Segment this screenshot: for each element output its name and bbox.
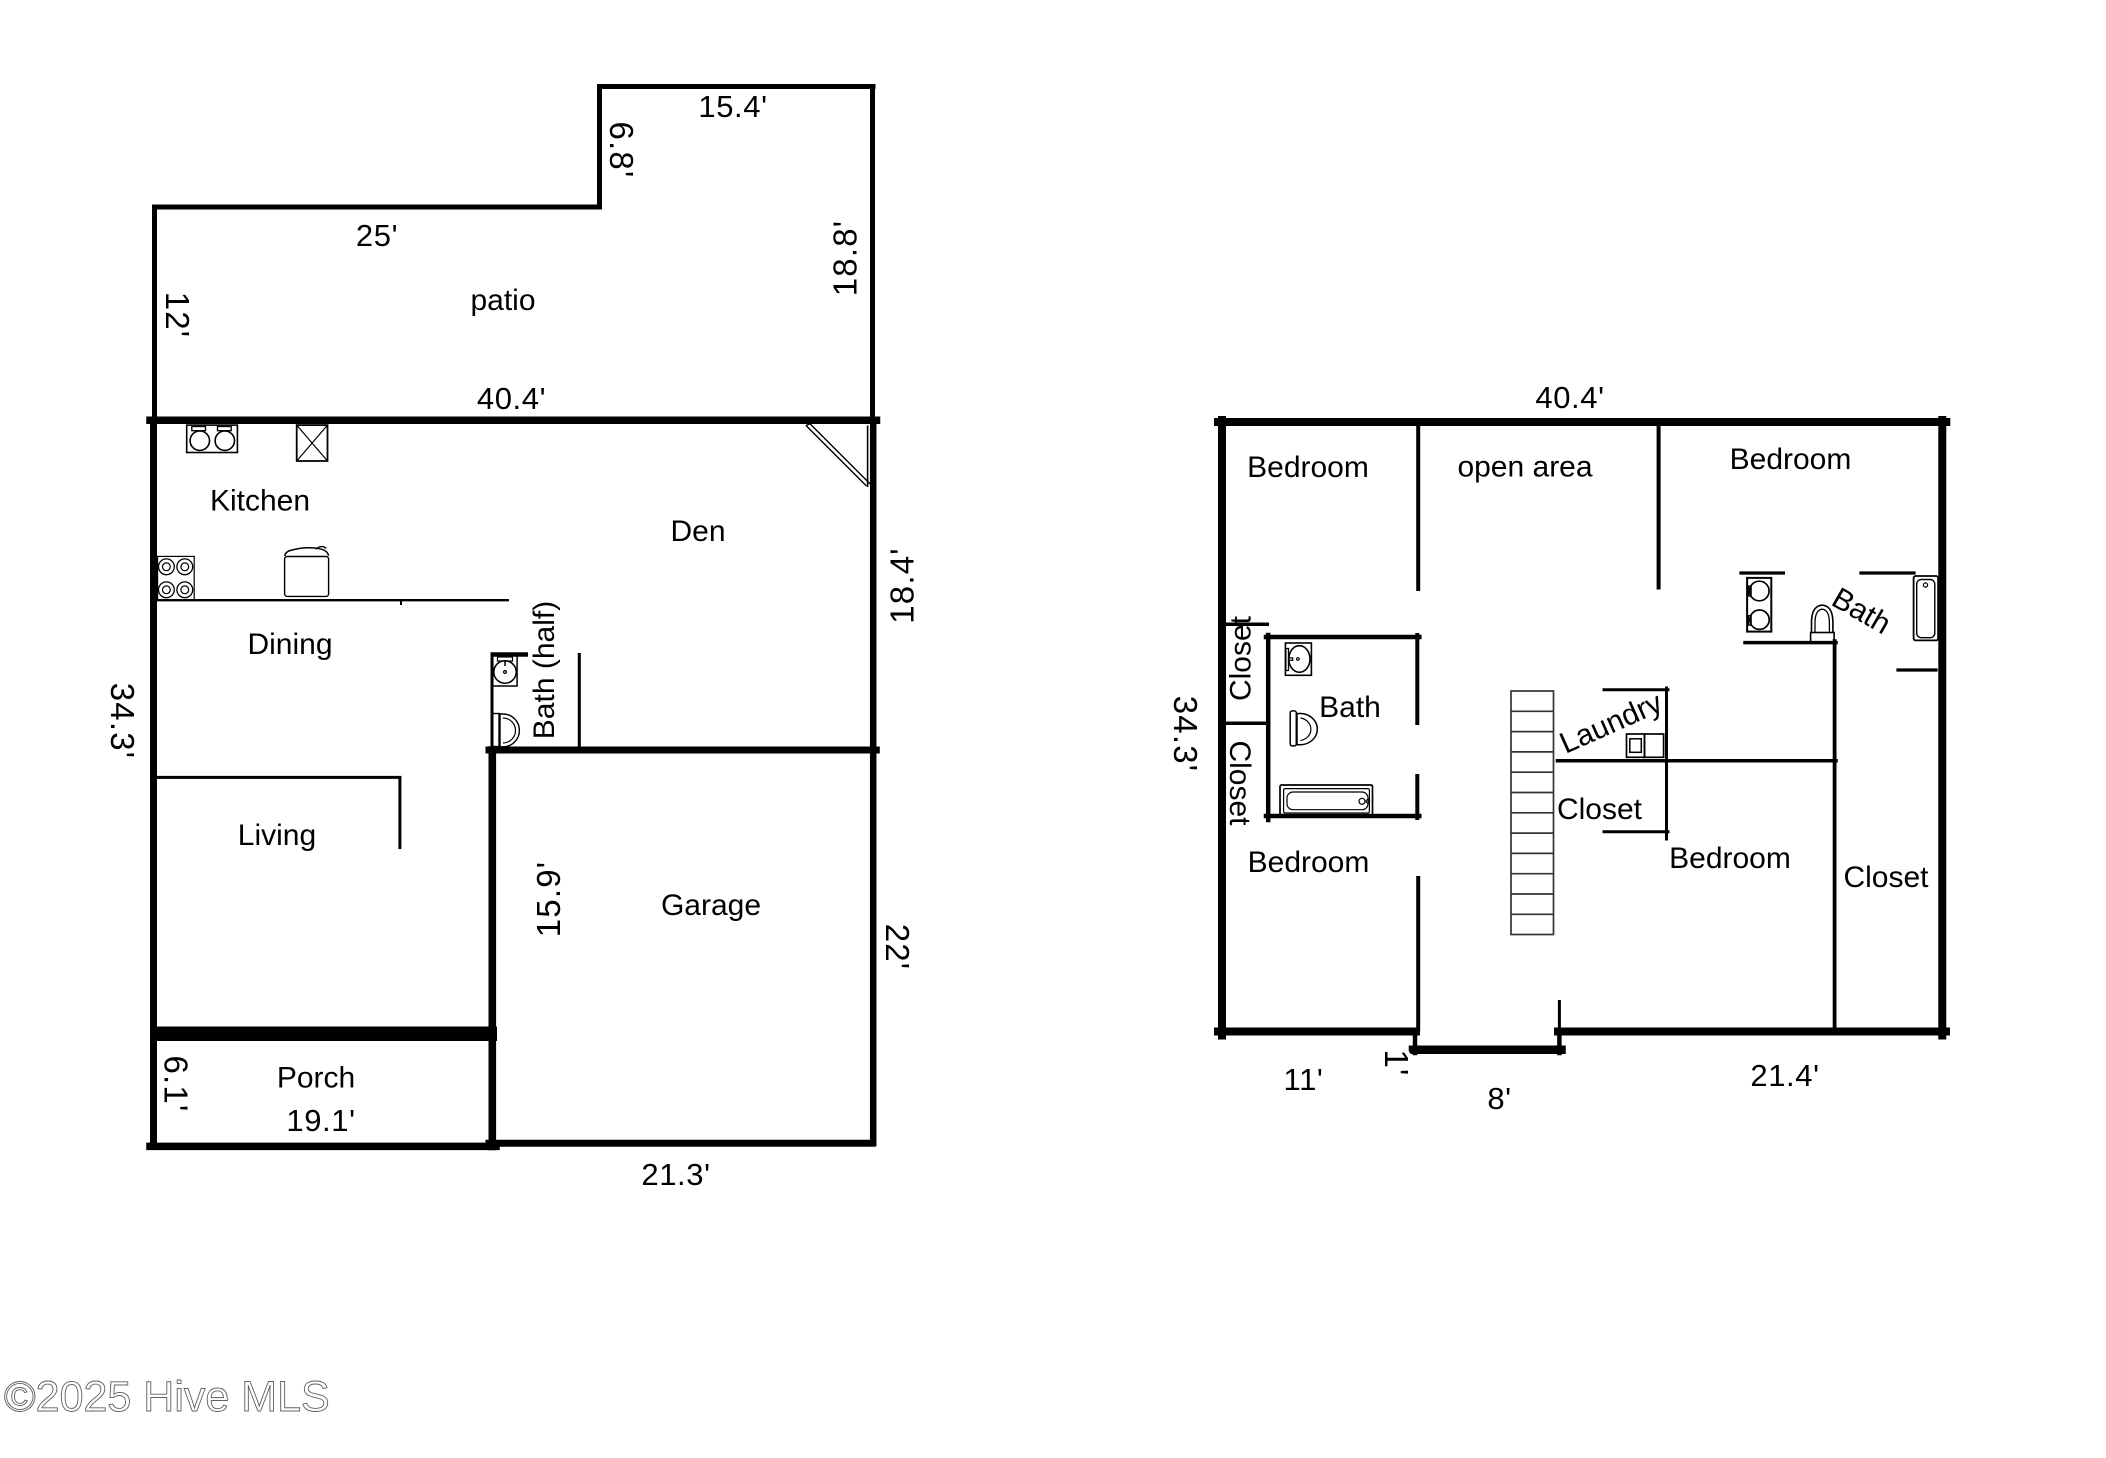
svg-text:21.4': 21.4'	[1750, 1058, 1819, 1093]
svg-text:Bath: Bath	[1319, 691, 1381, 724]
svg-text:Bedroom: Bedroom	[1248, 846, 1370, 879]
svg-text:18.8': 18.8'	[827, 220, 864, 297]
svg-text:Closet: Closet	[1223, 740, 1256, 826]
svg-text:6.8': 6.8'	[603, 122, 640, 179]
svg-text:Dining: Dining	[247, 628, 332, 661]
svg-text:12': 12'	[159, 292, 196, 339]
svg-text:Closet: Closet	[1843, 861, 1929, 894]
svg-text:25': 25'	[356, 218, 398, 253]
svg-text:15.9': 15.9'	[530, 861, 567, 938]
svg-text:Garage: Garage	[661, 889, 761, 922]
svg-text:Closet: Closet	[1225, 615, 1258, 701]
svg-text:©2025 Hive MLS: ©2025 Hive MLS	[4, 1373, 330, 1421]
svg-text:34.3': 34.3'	[1167, 696, 1204, 773]
svg-text:open area: open area	[1457, 451, 1592, 484]
svg-text:22': 22'	[879, 924, 916, 971]
svg-text:Kitchen: Kitchen	[210, 485, 310, 518]
svg-text:21.3': 21.3'	[641, 1157, 710, 1192]
svg-text:Closet: Closet	[1557, 793, 1643, 826]
svg-text:8': 8'	[1487, 1081, 1511, 1116]
svg-text:Porch: Porch	[277, 1062, 355, 1095]
svg-text:Living: Living	[238, 819, 316, 852]
svg-text:18.4': 18.4'	[884, 547, 921, 624]
svg-text:Bedroom: Bedroom	[1247, 451, 1369, 484]
svg-text:19.1': 19.1'	[286, 1103, 355, 1138]
svg-text:15.4': 15.4'	[698, 89, 767, 124]
svg-text:Bedroom: Bedroom	[1669, 842, 1791, 875]
svg-text:40.4': 40.4'	[1535, 380, 1604, 415]
svg-text:Den: Den	[670, 515, 725, 548]
svg-text:Bedroom: Bedroom	[1730, 443, 1852, 476]
svg-text:6.1': 6.1'	[158, 1056, 195, 1113]
svg-text:34.3': 34.3'	[104, 683, 141, 760]
svg-text:patio: patio	[470, 284, 535, 317]
svg-text:40.4': 40.4'	[477, 381, 546, 416]
svg-text:Bath (half): Bath (half)	[528, 601, 561, 739]
svg-text:11': 11'	[1284, 1062, 1324, 1097]
svg-text:1': 1'	[1378, 1049, 1415, 1076]
